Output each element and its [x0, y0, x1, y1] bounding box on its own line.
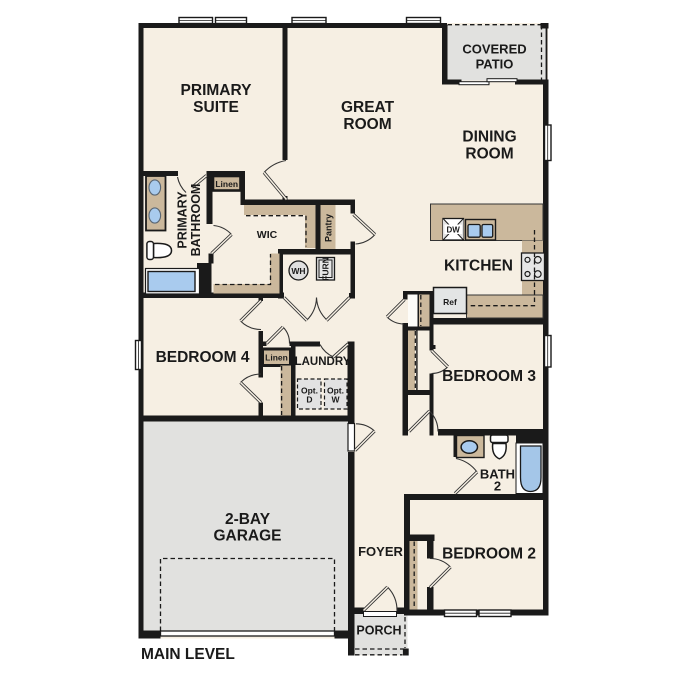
svg-text:PORCH: PORCH	[356, 624, 401, 638]
svg-text:DW: DW	[447, 225, 461, 234]
svg-text:KITCHEN: KITCHEN	[444, 258, 513, 275]
svg-text:2: 2	[494, 479, 501, 494]
svg-text:BEDROOM 4: BEDROOM 4	[156, 349, 250, 366]
svg-text:2-BAY: 2-BAY	[225, 511, 271, 528]
svg-text:Pantry: Pantry	[324, 214, 334, 242]
svg-text:FOYER: FOYER	[358, 544, 403, 559]
svg-text:FURN: FURN	[321, 257, 331, 281]
svg-text:DINING: DINING	[462, 129, 516, 146]
svg-text:BEDROOM 2: BEDROOM 2	[442, 546, 536, 563]
svg-text:BATHROOM: BATHROOM	[189, 184, 203, 257]
svg-text:BEDROOM 3: BEDROOM 3	[442, 368, 536, 385]
svg-text:D: D	[306, 395, 312, 405]
svg-text:ROOM: ROOM	[465, 146, 513, 163]
svg-text:COVERED: COVERED	[462, 42, 526, 57]
svg-text:Ref: Ref	[443, 297, 457, 307]
svg-text:MAIN LEVEL: MAIN LEVEL	[141, 646, 235, 663]
svg-text:PRIMARY: PRIMARY	[176, 191, 190, 249]
svg-text:Linen: Linen	[215, 179, 238, 189]
svg-text:SUITE: SUITE	[193, 99, 239, 116]
svg-text:PATIO: PATIO	[476, 57, 514, 72]
svg-text:PRIMARY: PRIMARY	[181, 82, 253, 99]
svg-text:Linen: Linen	[265, 353, 288, 363]
svg-text:WIC: WIC	[257, 229, 278, 241]
svg-text:GREAT: GREAT	[341, 99, 395, 116]
svg-text:ROOM: ROOM	[343, 116, 391, 133]
svg-text:LAUNDRY: LAUNDRY	[295, 356, 351, 368]
svg-text:WH: WH	[291, 266, 305, 276]
svg-text:GARAGE: GARAGE	[213, 528, 281, 545]
svg-text:W: W	[331, 395, 340, 405]
